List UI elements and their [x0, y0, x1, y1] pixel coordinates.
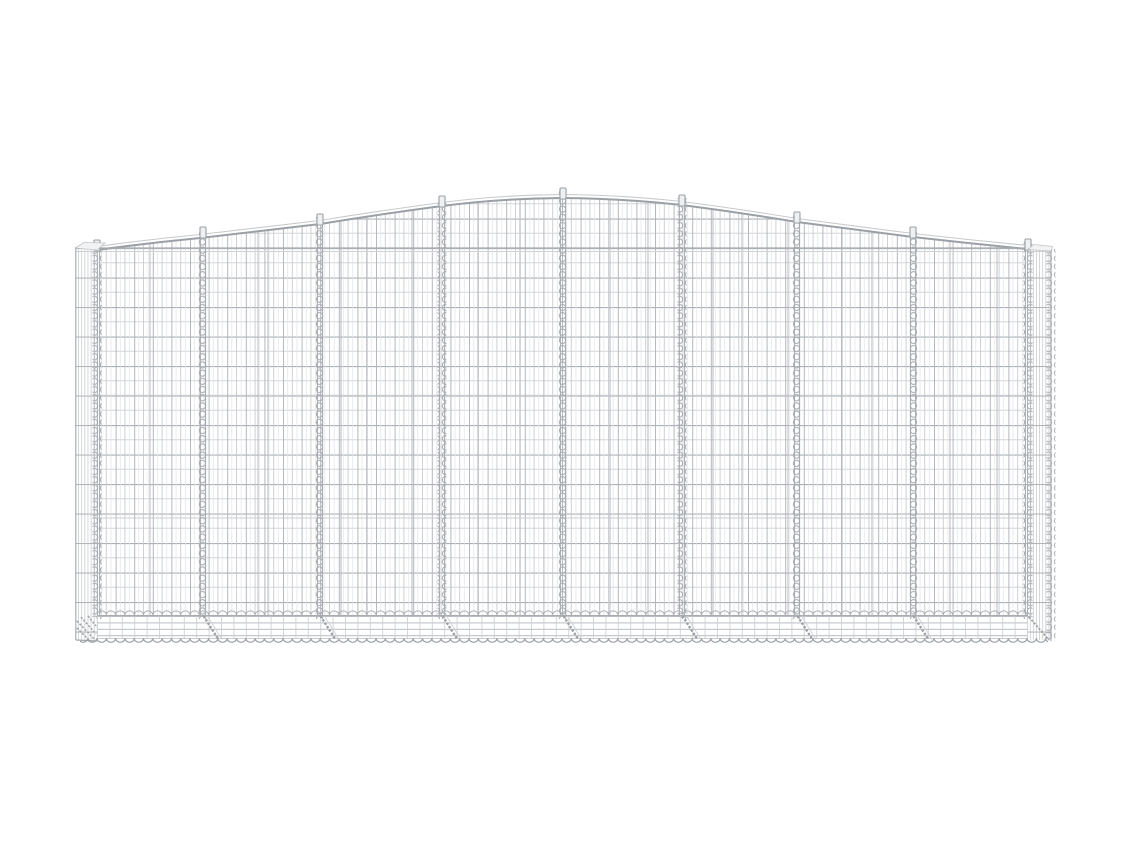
- spiral-joint: [793, 215, 802, 619]
- bottom-scallop-edge: [80, 638, 1048, 646]
- spiral-joint: [678, 198, 687, 619]
- gabion-basket-graphic: [0, 0, 1125, 843]
- product-photo-gabion-basket: [0, 0, 1125, 843]
- spiral-joint: [438, 199, 447, 619]
- spiral-joint: [199, 230, 208, 619]
- spiral-joint: [559, 191, 568, 619]
- base-strip: [80, 609, 1048, 646]
- right-end-panel: [1028, 245, 1056, 642]
- front-wire-feet-loops: [97, 609, 1028, 616]
- spiral-joint: [909, 230, 918, 619]
- spiral-joint: [316, 217, 325, 619]
